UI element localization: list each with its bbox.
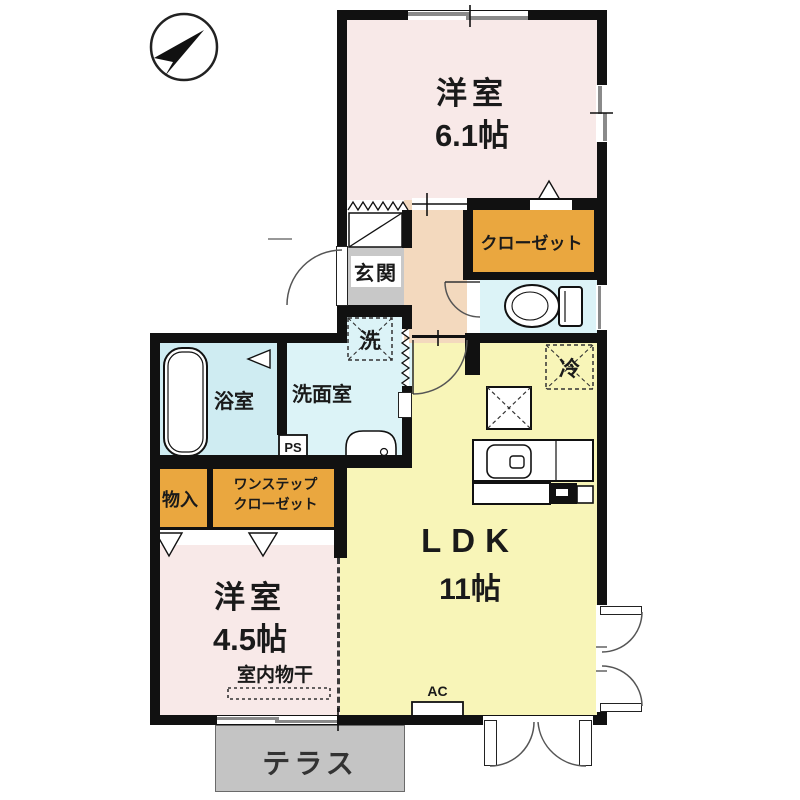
wall-wash-ldk-upper	[402, 317, 412, 329]
wall-hall-ldk-header	[412, 335, 465, 338]
entrance-label: 玄関	[351, 256, 401, 287]
fridge-label: 冷	[546, 353, 593, 383]
ldk-east-door-leaf-top	[600, 606, 642, 615]
bedroom1-name-label: 洋室	[347, 68, 597, 113]
wall-closet-toilet	[470, 272, 597, 280]
window-east-pane	[603, 113, 607, 141]
bedroom2-size-label: 4.5帖	[160, 614, 340, 659]
closet-label: クローゼット	[466, 229, 597, 254]
hall-floor	[404, 200, 467, 343]
shoe-cabinet	[349, 213, 402, 247]
wall-bath-top	[150, 333, 347, 343]
wall-entrance-bottom	[340, 305, 412, 317]
window-north-pane	[408, 12, 470, 16]
wall-niche	[398, 392, 412, 418]
wall-toilet-bottom	[465, 333, 607, 343]
bath-label: 浴室	[214, 385, 254, 414]
ldk-south-door-opening	[483, 716, 593, 725]
storage-label: 物入	[150, 486, 210, 512]
east-door-arc-bottom	[602, 666, 642, 706]
window-east-pane	[598, 86, 602, 114]
wall-left-lower	[150, 333, 160, 725]
wall-toilet-left	[465, 333, 480, 375]
ldk-name-label: LDK	[400, 522, 540, 560]
ldk-east-door-mullion	[596, 646, 607, 672]
onestep-label-line2: クローゼット	[210, 494, 341, 514]
window-south-pane	[275, 720, 337, 723]
indoor-drying-label: 室内物干	[195, 660, 355, 687]
bedroom1-doorway	[412, 198, 467, 210]
ac-label: AC	[412, 683, 463, 699]
onestep-label-line1: ワンステップ	[210, 474, 341, 494]
wall-shoebox-right	[402, 210, 412, 248]
window-north-pane	[466, 16, 528, 20]
zigzag-opening-horizontal	[348, 202, 408, 210]
ldk-south-door-leaf-right	[579, 720, 592, 766]
wall-bath-divider	[277, 343, 287, 435]
washer-label: 洗	[348, 325, 392, 355]
ldk-east-door-leaf-bottom	[600, 703, 642, 712]
ldk-size-label: 11帖	[400, 564, 540, 608]
bedroom2-name-label: 洋室	[160, 572, 340, 617]
entry-door-leaf	[336, 246, 348, 306]
entry-door-arc	[287, 250, 342, 305]
north-arrow-icon	[151, 14, 217, 80]
toilet-floor	[480, 278, 597, 333]
terrace-label: テラス	[215, 742, 405, 782]
window-toilet-pane	[598, 286, 601, 329]
floor-plan: 洋室 6.1帖 クローゼット 玄関 洗 冷 浴室 洗面室 PS 物入 ワンステッ…	[0, 0, 800, 800]
closet1-door-opening	[530, 200, 572, 210]
ps-label: PS	[279, 440, 307, 455]
ldk-south-door-leaf-left	[484, 720, 497, 766]
east-door-arc-top	[602, 612, 642, 652]
window-south-pane	[217, 717, 279, 720]
wall-left-upper	[337, 10, 347, 250]
bedroom1-size-label: 6.1帖	[347, 110, 597, 155]
closet-door-track	[153, 530, 334, 545]
wall-wash-bottom	[150, 455, 412, 468]
washroom-label: 洗面室	[292, 378, 352, 407]
